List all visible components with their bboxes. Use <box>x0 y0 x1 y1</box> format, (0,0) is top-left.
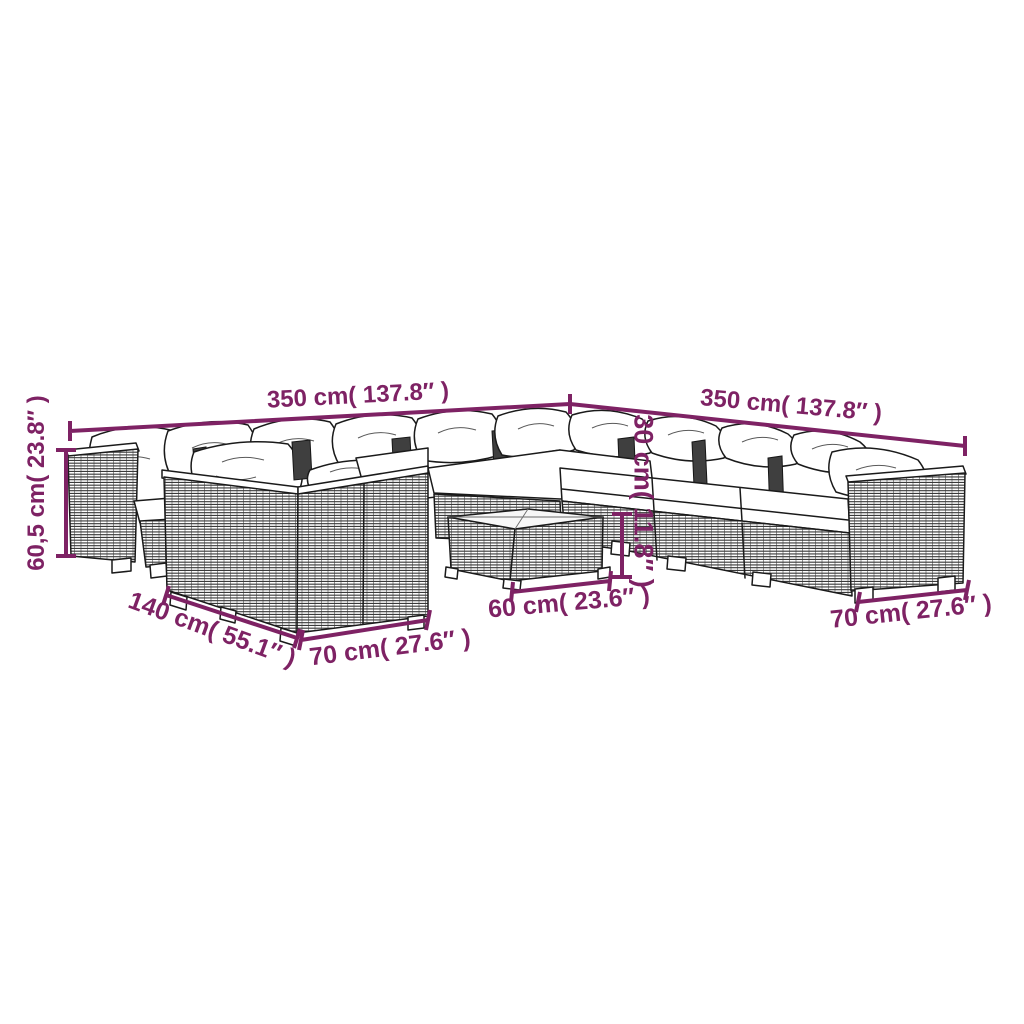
dimension-label-left-height: 60,5 cm( 23.8″ ) <box>23 395 51 571</box>
foot <box>598 567 610 579</box>
coffee-table <box>445 509 610 590</box>
pillow <box>719 424 799 467</box>
foot <box>445 567 458 579</box>
foot <box>752 572 771 587</box>
armrest-panel <box>68 449 138 562</box>
product-dimension-diagram: 350 cm( 137.8″ ) 350 cm( 137.8″ ) 60,5 c… <box>0 0 1024 1024</box>
furniture-illustration <box>0 0 1024 1024</box>
module-divider <box>363 484 364 624</box>
foot <box>667 556 686 571</box>
foot <box>112 558 131 573</box>
foot <box>150 563 167 578</box>
dimension-label-back-height: 30 cm( 11.8″ ) <box>628 414 659 588</box>
armrest-panel <box>848 473 965 591</box>
rattan-post <box>692 440 707 486</box>
